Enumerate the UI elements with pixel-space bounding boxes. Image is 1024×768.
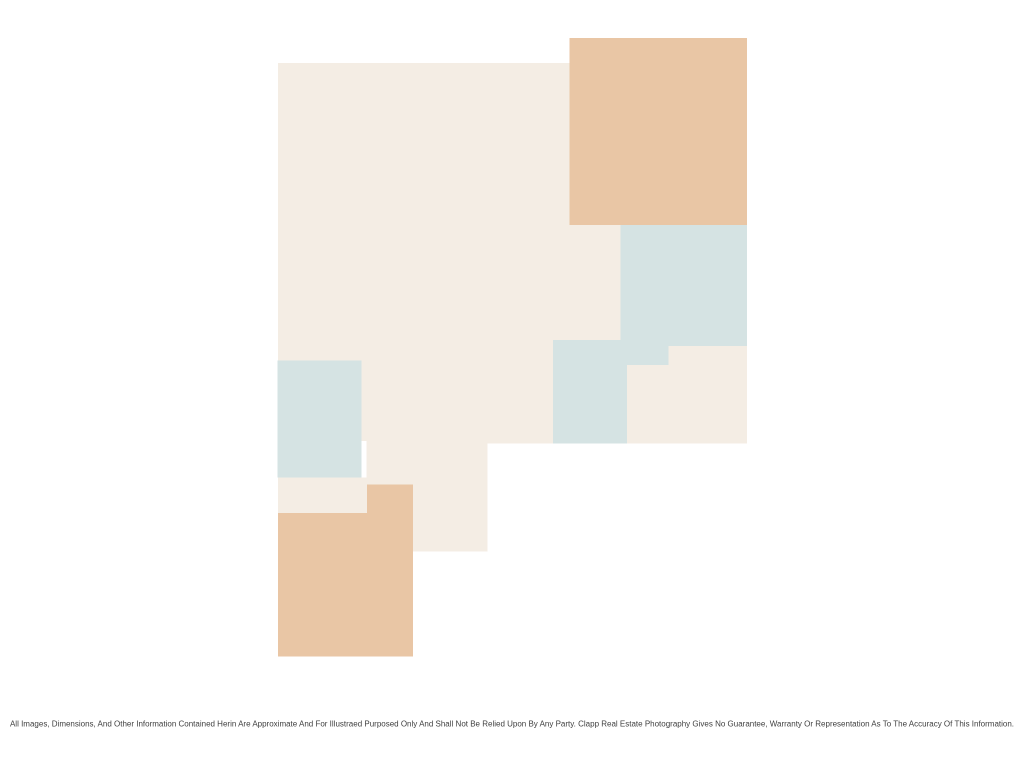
svg-text:All Images, Dimensions, And Ot: All Images, Dimensions, And Other Inform… xyxy=(10,720,1014,729)
